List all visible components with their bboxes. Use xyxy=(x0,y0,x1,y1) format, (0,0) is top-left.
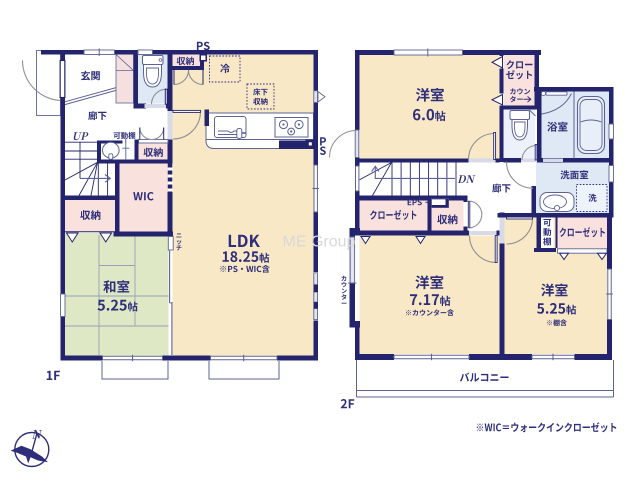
svg-text:ME Group: ME Group xyxy=(283,234,356,251)
